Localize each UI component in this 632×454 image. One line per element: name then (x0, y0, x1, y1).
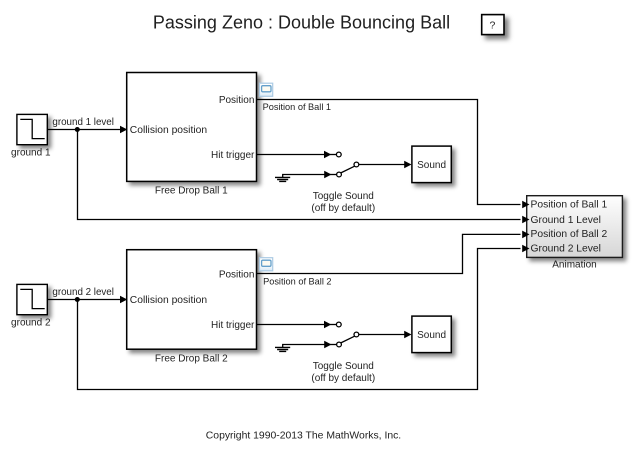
svg-text:Copyright 1990-2013 The MathWo: Copyright 1990-2013 The MathWorks, Inc. (206, 430, 401, 441)
svg-text:Free Drop Ball 1: Free Drop Ball 1 (155, 185, 228, 196)
svg-text:ground 1: ground 1 (11, 148, 51, 159)
svg-text:ground 2 level: ground 2 level (52, 287, 114, 298)
svg-text:Position of Ball 1: Position of Ball 1 (263, 102, 331, 112)
svg-text:(off by default): (off by default) (311, 373, 375, 384)
svg-text:Collision position: Collision position (130, 125, 208, 136)
svg-text:?: ? (489, 20, 495, 32)
svg-text:Ground 2 Level: Ground 2 Level (531, 244, 601, 255)
svg-text:Sound: Sound (417, 160, 446, 171)
svg-text:Collision position: Collision position (130, 295, 208, 306)
svg-text:(off by default): (off by default) (311, 203, 375, 214)
svg-text:Sound: Sound (417, 330, 446, 341)
svg-text:Position: Position (219, 269, 255, 280)
svg-text:Ground 1 Level: Ground 1 Level (531, 215, 601, 226)
svg-text:ground 2: ground 2 (11, 318, 51, 329)
svg-text:Toggle Sound: Toggle Sound (313, 361, 374, 372)
svg-text:Animation: Animation (552, 259, 596, 270)
svg-text:ground 1 level: ground 1 level (52, 117, 114, 128)
svg-text:Position of Ball 2: Position of Ball 2 (531, 229, 608, 240)
svg-text:Hit trigger: Hit trigger (211, 150, 255, 161)
svg-text:Position of Ball 1: Position of Ball 1 (531, 200, 608, 211)
svg-text:Passing Zeno : Double Bouncing: Passing Zeno : Double Bouncing Ball (153, 12, 450, 32)
svg-text:Hit trigger: Hit trigger (211, 320, 255, 331)
svg-text:Toggle Sound: Toggle Sound (313, 191, 374, 202)
svg-text:Position: Position (219, 95, 255, 106)
svg-text:Free Drop Ball 2: Free Drop Ball 2 (155, 353, 228, 364)
svg-text:Position of Ball 2: Position of Ball 2 (263, 276, 331, 286)
